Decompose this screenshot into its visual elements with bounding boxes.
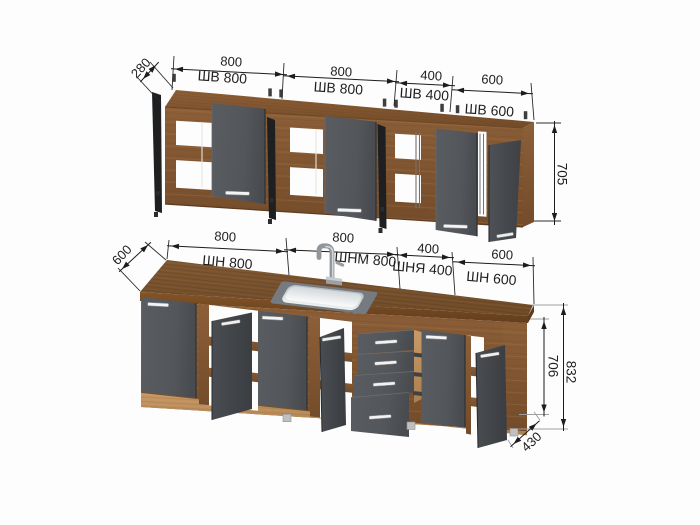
svg-text:600: 600 — [481, 71, 503, 87]
svg-text:800: 800 — [330, 63, 352, 79]
svg-text:800: 800 — [332, 229, 354, 245]
svg-text:800: 800 — [220, 53, 242, 69]
svg-text:800: 800 — [214, 228, 236, 244]
svg-text:706: 706 — [546, 355, 561, 378]
svg-text:705: 705 — [555, 163, 570, 186]
svg-text:832: 832 — [564, 361, 579, 384]
svg-text:400: 400 — [420, 67, 442, 83]
svg-text:600: 600 — [491, 246, 513, 262]
svg-text:400: 400 — [417, 240, 439, 256]
